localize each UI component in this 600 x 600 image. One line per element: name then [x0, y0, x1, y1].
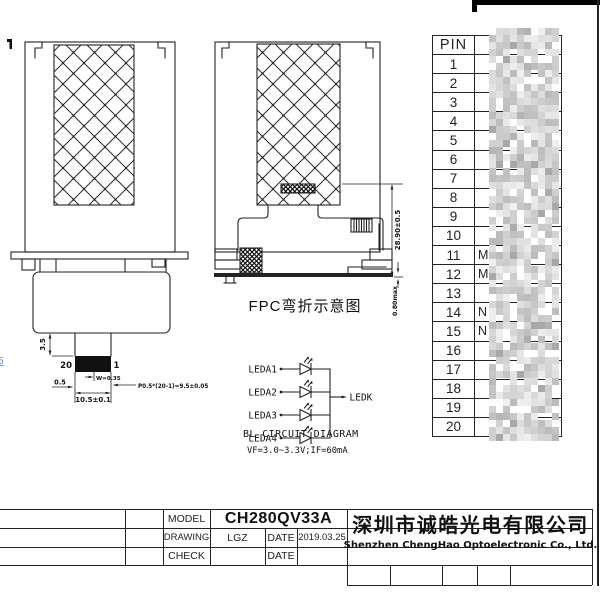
pin-number-cell: 14 [433, 303, 475, 321]
pin-signal-cell: N [475, 322, 561, 340]
led-anode-label: LEDA3 [248, 411, 277, 422]
pin-row: 7 [433, 169, 561, 188]
dim-pitch-label: P0.5*(20-1)=9.5±0.05 [138, 384, 208, 390]
led-anode-label: LEDA1 [248, 365, 277, 376]
pin-number-cell: 5 [433, 131, 475, 149]
pin-number-cell: 8 [433, 189, 475, 207]
active-area-hatch [257, 44, 340, 205]
driver-ic [281, 184, 315, 193]
pin-signal-cell [475, 189, 561, 207]
pin-number-cell: 9 [433, 208, 475, 226]
pin-number-cell: 6 [433, 151, 475, 169]
pin-signal-cell [475, 227, 561, 245]
pin-number-cell: 2 [433, 74, 475, 92]
fpc-fold-left [238, 205, 268, 250]
pin-number-cell: 19 [433, 399, 475, 417]
dim-margin-label: 0.5 [54, 379, 66, 387]
pin-signal-cell [475, 170, 561, 188]
page-border-top [472, 0, 600, 5]
pin-signal-cell: M [475, 246, 561, 264]
pin-row: 14N [433, 302, 561, 321]
pin-row: 18 [433, 379, 561, 398]
pin-number-cell: 4 [433, 112, 475, 130]
pin-row: 16 [433, 341, 561, 360]
led-branch [283, 381, 331, 398]
pin-signal-cell [475, 112, 561, 130]
date-label: DATE [265, 528, 297, 547]
check-label: CHECK [163, 547, 210, 565]
backlight-component [240, 248, 262, 273]
bl-circuit-diagram: LEDA1 LEDA2 [243, 357, 373, 457]
pin-number-cell: 7 [433, 170, 475, 188]
pin-number-cell: 11 [433, 246, 475, 264]
led-branch [283, 404, 331, 421]
pin-row: 2 [433, 73, 561, 92]
pin-number-cell: 18 [433, 380, 475, 398]
dim-connector-width-label: 10.5±0.1 [75, 396, 111, 404]
pin-row: 13 [433, 283, 561, 302]
pin-number-cell: 3 [433, 93, 475, 111]
company-name-en: Shenzhen ChengHao Optoelectronic Co., Lt… [349, 536, 592, 554]
fpc-fold-caption: FPC弯折示意图 [248, 297, 361, 315]
pin-row: 9 [433, 207, 561, 226]
pin-signal-cell [475, 151, 561, 169]
pin-row: 20 [433, 417, 561, 436]
led-anode-label: LEDA2 [248, 388, 277, 399]
page-corner-tick [7, 39, 12, 49]
pin-signal-cell [475, 361, 561, 379]
model-value: CH280QV33A [210, 509, 347, 528]
pin-table-header-row: PIN [433, 36, 561, 54]
led-branch [283, 358, 331, 375]
pin-signal-cell [475, 93, 561, 111]
pin-row: 15N [433, 321, 561, 340]
pin-signal-cell [475, 418, 561, 436]
active-area-hatch [54, 45, 134, 205]
pin-number-cell: 16 [433, 342, 475, 360]
pin20-label: 20 [60, 361, 72, 371]
pin-row: 8 [433, 188, 561, 207]
edge-artifact: 5 [0, 356, 4, 367]
pin-number-cell: 10 [433, 227, 475, 245]
pin-signal-cell [475, 208, 561, 226]
pin-row: 17 [433, 360, 561, 379]
model-label: MODEL [163, 509, 210, 528]
pin-row: 3 [433, 92, 561, 111]
dim-thickness-label: 0.80max [392, 286, 399, 316]
pin-row: 4 [433, 111, 561, 130]
bl-circuit-spec: VF=3.0~3.3V;IF=60mA [247, 446, 348, 456]
engineering-drawing-sheet: 3.5 20 1 W=0.35 0.5 P0.5*(20-1)=9.5±0.05… [0, 0, 600, 600]
pin1-label: 1 [114, 361, 120, 371]
date-value: 2019.03.25 [297, 528, 347, 547]
pin-signal-cell [475, 399, 561, 417]
pin-signal-cell: N [475, 303, 561, 321]
pin-number-cell: 15 [433, 322, 475, 340]
pin-row: 19 [433, 398, 561, 417]
module-base [214, 273, 393, 277]
drawing-value: LGZ [210, 528, 265, 547]
pin-signal-cell [475, 380, 561, 398]
pin-row: 11M [433, 245, 561, 264]
dim-fpc-height-label: 28.90±0.5 [394, 210, 402, 251]
pin-number-cell: 1 [433, 55, 475, 73]
pin-row: 1 [433, 54, 561, 73]
led-cathode-label: LEDK [350, 393, 373, 404]
pin-header-cell: PIN [433, 36, 475, 54]
pin-number-cell: 12 [433, 265, 475, 283]
pin-signal-cell [475, 284, 561, 302]
pin-signal-cell [475, 342, 561, 360]
drawing-label: DRAWING [163, 528, 210, 547]
pin-signal-cell [475, 55, 561, 73]
dim-tail-label: 3.5 [39, 338, 47, 351]
dim-pin-width-label: W=0.35 [96, 376, 121, 382]
pin-row: 10 [433, 226, 561, 245]
side-view: 28.90±0.5 0.80max FPC弯折示意图 [214, 42, 403, 316]
pin-row: 5 [433, 130, 561, 149]
pin-signal-cell: M [475, 265, 561, 283]
fpc-outline [33, 272, 170, 333]
bl-circuit-title: BL CIRCUIT DIAGRAM [243, 429, 359, 440]
page-border-right [597, 0, 599, 586]
date-label-2: DATE [265, 547, 297, 565]
page-border-top-tick [472, 0, 477, 12]
pin-signal-cell [475, 74, 561, 92]
pin-number-cell: 20 [433, 418, 475, 436]
pin-header-signal-cell [475, 36, 561, 54]
pin-row: 6 [433, 150, 561, 169]
fpc-connector [75, 356, 111, 372]
pin-signal-cell [475, 131, 561, 149]
pin-row: 12M [433, 264, 561, 283]
pin-number-cell: 17 [433, 361, 475, 379]
pin-table: PIN 1234567891011M12M1314N15N1617181920 [432, 35, 562, 437]
pin-number-cell: 13 [433, 284, 475, 302]
company-name-cn: 深圳市诚皓光电有限公司 [349, 508, 592, 538]
front-view: 3.5 20 1 W=0.35 0.5 P0.5*(20-1)=9.5±0.05… [7, 39, 208, 404]
